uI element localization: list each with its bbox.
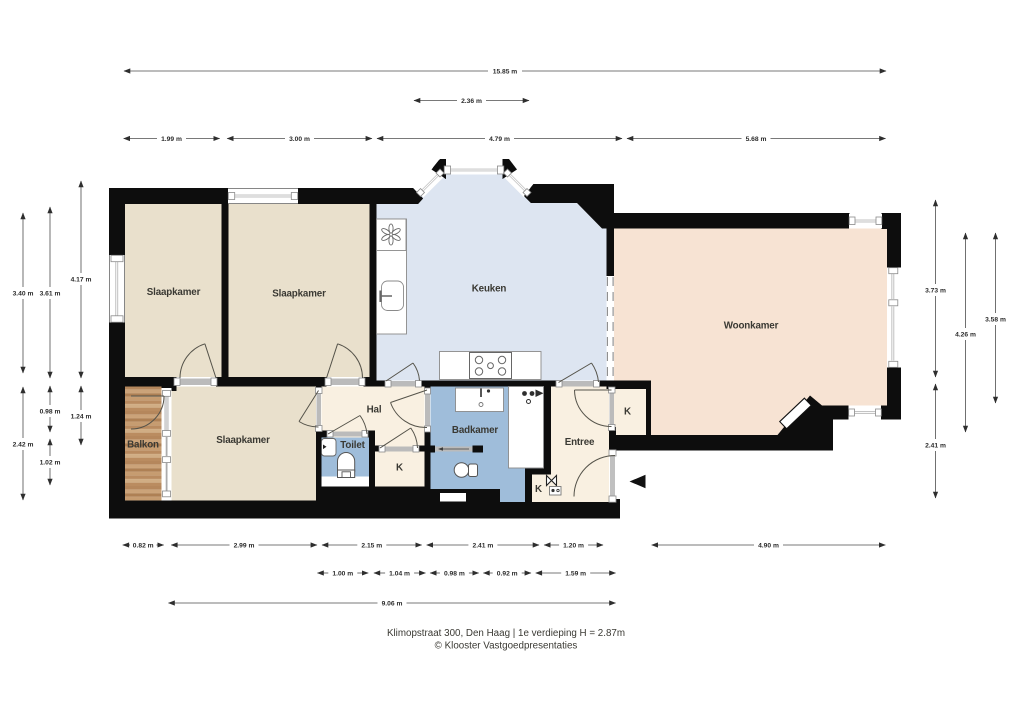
svg-text:Slaapkamer: Slaapkamer <box>147 287 201 298</box>
svg-text:K: K <box>624 407 631 418</box>
svg-text:2.15 m: 2.15 m <box>361 543 382 550</box>
svg-text:3.40 m: 3.40 m <box>13 291 34 298</box>
svg-text:1.24 m: 1.24 m <box>71 414 92 421</box>
svg-text:K: K <box>535 484 542 495</box>
svg-text:2.36 m: 2.36 m <box>461 98 482 105</box>
svg-text:3.73 m: 3.73 m <box>925 288 946 295</box>
svg-text:3.58 m: 3.58 m <box>985 317 1006 324</box>
svg-text:0.98 m: 0.98 m <box>40 409 61 416</box>
svg-text:1.99 m: 1.99 m <box>161 136 182 143</box>
svg-text:Badkamer: Badkamer <box>452 425 499 436</box>
svg-text:1.20 m: 1.20 m <box>563 543 584 550</box>
svg-text:9.06 m: 9.06 m <box>382 601 403 608</box>
svg-text:Slaapkamer: Slaapkamer <box>272 289 326 300</box>
svg-text:1.04 m: 1.04 m <box>389 571 410 578</box>
svg-text:0.82 m: 0.82 m <box>133 543 154 550</box>
svg-text:Klimopstraat 300, Den Haag | 1: Klimopstraat 300, Den Haag | 1e verdiepi… <box>387 628 625 639</box>
svg-text:Hal: Hal <box>367 405 382 416</box>
svg-text:2.42 m: 2.42 m <box>13 442 34 449</box>
svg-text:1.00 m: 1.00 m <box>332 571 353 578</box>
svg-text:4.26 m: 4.26 m <box>955 332 976 339</box>
svg-text:2.99 m: 2.99 m <box>234 543 255 550</box>
svg-text:4.90 m: 4.90 m <box>758 543 779 550</box>
svg-text:1.59 m: 1.59 m <box>565 571 586 578</box>
svg-text:Keuken: Keuken <box>472 284 507 295</box>
svg-text:2.41 m: 2.41 m <box>925 443 946 450</box>
svg-text:Entree: Entree <box>565 437 595 448</box>
svg-text:5.68 m: 5.68 m <box>746 136 767 143</box>
svg-text:K: K <box>396 463 403 474</box>
svg-text:4.17 m: 4.17 m <box>71 277 92 284</box>
svg-text:Slaapkamer: Slaapkamer <box>216 435 270 446</box>
svg-text:3.61 m: 3.61 m <box>40 291 61 298</box>
svg-text:2.41 m: 2.41 m <box>472 543 493 550</box>
svg-text:15.85 m: 15.85 m <box>493 69 518 76</box>
svg-text:Balkon: Balkon <box>127 440 159 451</box>
svg-text:© Klooster Vastgoedpresentatie: © Klooster Vastgoedpresentaties <box>435 641 578 652</box>
svg-text:4.79 m: 4.79 m <box>489 136 510 143</box>
svg-text:Toilet: Toilet <box>340 440 365 451</box>
svg-text:3.00 m: 3.00 m <box>289 136 310 143</box>
svg-text:0.92 m: 0.92 m <box>497 571 518 578</box>
svg-text:Woonkamer: Woonkamer <box>724 321 779 332</box>
svg-text:1.02 m: 1.02 m <box>40 460 61 467</box>
svg-text:0.98 m: 0.98 m <box>444 571 465 578</box>
